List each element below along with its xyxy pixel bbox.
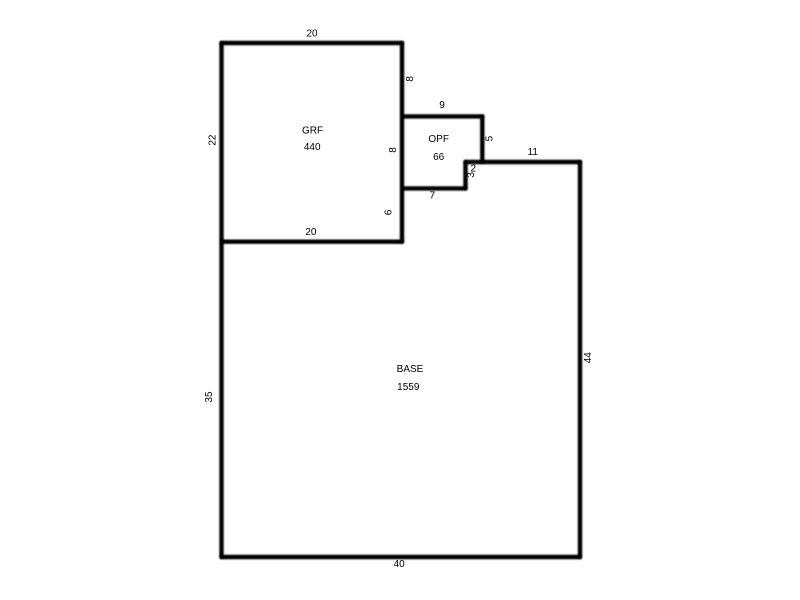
svg-text:OPF: OPF: [428, 134, 449, 145]
svg-text:9: 9: [439, 100, 445, 111]
svg-text:22: 22: [207, 134, 218, 146]
svg-text:1559: 1559: [397, 382, 420, 393]
svg-text:GRF: GRF: [302, 126, 323, 137]
svg-text:8: 8: [405, 76, 416, 82]
svg-text:35: 35: [204, 391, 215, 403]
svg-text:66: 66: [433, 152, 445, 163]
svg-text:44: 44: [583, 352, 594, 364]
svg-text:20: 20: [305, 227, 317, 238]
svg-text:440: 440: [304, 142, 321, 153]
svg-text:8: 8: [388, 147, 399, 153]
svg-text:6: 6: [384, 209, 395, 215]
svg-text:11: 11: [528, 147, 539, 158]
svg-text:40: 40: [394, 559, 406, 570]
svg-text:3: 3: [466, 172, 477, 178]
svg-text:20: 20: [306, 29, 318, 40]
svg-text:7: 7: [430, 190, 436, 201]
svg-text:5: 5: [485, 135, 496, 141]
svg-text:BASE: BASE: [397, 364, 424, 375]
